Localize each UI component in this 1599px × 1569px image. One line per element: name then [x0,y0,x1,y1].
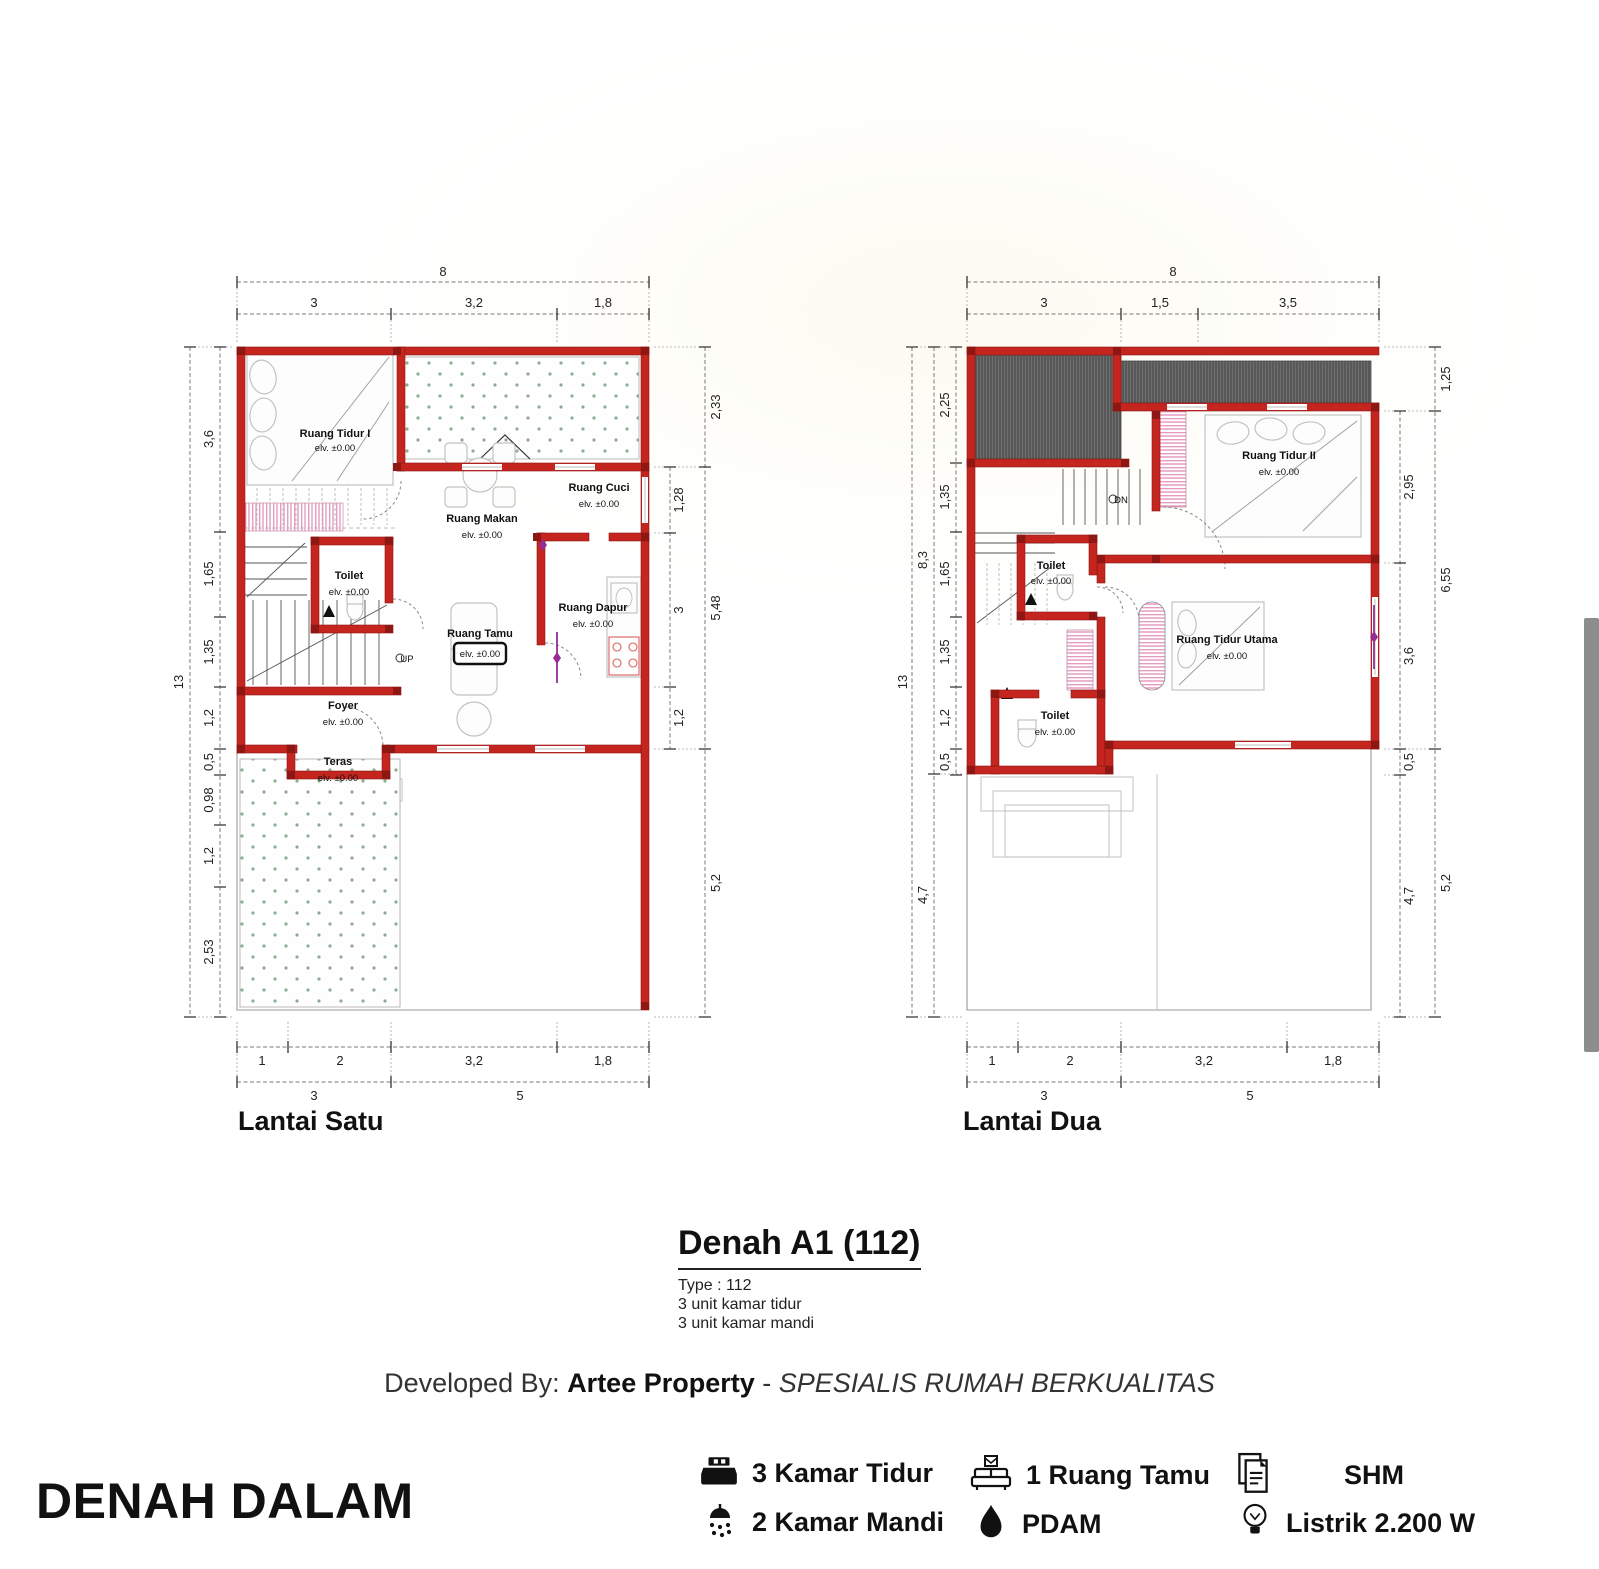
dim-label: 3,2 [465,295,483,310]
developer-prefix: Developed By: [384,1368,567,1398]
dim-label: 2,53 [201,939,216,964]
floor1-title: Lantai Satu [238,1106,384,1137]
room-elev: elv. ±0.00 [460,649,500,660]
feature-label: PDAM [1022,1509,1102,1540]
floorplan-lantai-satu: 8 3 3,2 1,8 13 3,6 1,65 1,35 1,2 0,5 0,9… [170,252,760,1102]
developer-separator: - [755,1368,779,1398]
room-elev: elv. ±0.00 [1035,727,1075,738]
room-elev: elv. ±0.00 [329,587,369,598]
developer-brand: Artee Property [567,1368,755,1398]
plan-bathrooms-line: 3 unit kamar mandi [678,1314,921,1333]
stair-up-label: UP [400,654,413,665]
room-elev: elv. ±0.00 [1207,651,1247,662]
lower-floor-outline [967,749,1371,1010]
dim-label: 6,55 [1438,567,1453,592]
feature-label: Listrik 2.200 W [1286,1508,1475,1539]
room-elev: elv. ±0.00 [579,499,619,510]
room-label-ruang-makan: Ruang Makan [446,513,518,525]
armchair [457,702,491,736]
room-elev: elv. ±0.00 [462,530,502,541]
room-label-teras: Teras [324,756,353,768]
room-label-ruang-dapur: Ruang Dapur [558,602,628,614]
dim-label: 3 [671,606,686,613]
dim-label: 5,48 [708,595,723,620]
room-label-foyer: Foyer [328,700,359,712]
dim-label: 1,2 [201,709,216,727]
dim-label: 3,6 [1401,647,1416,665]
dim-label: 8 [1169,264,1176,279]
dim-label: 3,5 [1279,295,1297,310]
dim-label: 2 [1066,1053,1073,1068]
closet-hatch [241,503,343,531]
room-label-toilet-bawah: Toilet [1041,710,1070,722]
dim-label: 13 [895,675,910,689]
dim-label: 2,95 [1401,474,1416,499]
room-elev: elv. ±0.00 [1031,576,1071,587]
developer-line: Developed By: Artee Property - SPESIALIS… [0,1368,1599,1399]
dim-label: 3 [1040,295,1047,310]
dim-label: 13 [171,675,186,689]
feature-ruang-tamu: 1 Ruang Tamu [968,1455,1210,1495]
dim-label: 3,6 [201,430,216,448]
dim-label: 1,8 [594,1053,612,1068]
scrollbar-thumb[interactable] [1584,618,1599,1052]
room-label-ruang-tidur-2: Ruang Tidur II [1242,450,1316,462]
feature-kamar-mandi: 2 Kamar Mandi [700,1502,944,1542]
feature-kamar-tidur: 3 Kamar Tidur [698,1455,933,1491]
dim-label: 1 [258,1053,265,1068]
floor-drain [323,605,335,617]
feature-shm: SHM [1232,1452,1404,1498]
room-label-ruang-tidur-utama: Ruang Tidur Utama [1176,634,1278,646]
dim-label: 8 [439,264,446,279]
dim-label: 0,5 [201,753,216,771]
room-label-toilet: Toilet [335,570,364,582]
dim-label: 1,2 [201,847,216,865]
dim-label: 8,3 [915,551,930,569]
shower-icon [700,1502,740,1542]
room-elev: elv. ±0.00 [573,619,613,630]
dim-label: 1,35 [201,639,216,664]
dim-label: 3,2 [465,1053,483,1068]
dim-label: 5,2 [708,874,723,892]
room-elev: elv. ±0.00 [318,773,358,784]
bed-icon [698,1455,740,1491]
room-elev: elv. ±0.00 [315,443,355,454]
dim-label: 3 [1040,1088,1047,1103]
dim-label: 1,35 [937,639,952,664]
dim-label: 2,33 [708,394,723,419]
dim-label: 3 [310,1088,317,1103]
dim-label: 3,2 [1195,1053,1213,1068]
water-drop-icon [972,1502,1010,1546]
dim-label: 1,65 [201,561,216,586]
dim-label: 1,28 [671,487,686,512]
floor2-title: Lantai Dua [963,1106,1101,1137]
title-block: Denah A1 (112) Type : 112 3 unit kamar t… [678,1224,921,1333]
dim-label: 5 [516,1088,523,1103]
feature-listrik: Listrik 2.200 W [1236,1500,1475,1546]
floorplan-lantai-dua: 8 3 1,5 3,5 13 8,3 4,7 2,25 1,35 1,65 1,… [900,252,1490,1102]
feature-label: SHM [1344,1460,1404,1491]
stairs-floor2 [975,469,1140,625]
feature-label: 3 Kamar Tidur [752,1458,933,1489]
feature-label: 1 Ruang Tamu [1026,1460,1210,1491]
room-label-ruang-tidur: Ruang Tidur I [300,428,371,440]
dim-label: 5 [1246,1088,1253,1103]
dim-label: 1,8 [1324,1053,1342,1068]
section-label: DENAH DALAM [36,1472,414,1530]
feature-label: 2 Kamar Mandi [752,1507,944,1538]
dim-label: 1 [988,1053,995,1068]
dim-label: 1,2 [937,709,952,727]
dim-label: 0,5 [937,753,952,771]
room-label-ruang-cuci: Ruang Cuci [568,482,629,494]
room-label-toilet-atas: Toilet [1037,560,1066,572]
plan-bedrooms-line: 3 unit kamar tidur [678,1295,921,1314]
dim-label: 0,98 [201,787,216,812]
dim-label: 1,2 [671,709,686,727]
dim-label: 1,25 [1438,366,1453,391]
room-label-ruang-tamu: Ruang Tamu [447,628,513,640]
dim-label: 4,7 [1401,887,1416,905]
plan-title: Denah A1 (112) [678,1224,921,1270]
dim-label: 1,8 [594,295,612,310]
room-elev: elv. ±0.00 [323,717,363,728]
bulb-icon [1236,1500,1274,1546]
plan-type-line: Type : 112 [678,1276,921,1295]
stair-down-label: DN [1114,495,1128,506]
dim-label: 3 [310,295,317,310]
page: 8 3 3,2 1,8 13 3,6 1,65 1,35 1,2 0,5 0,9… [0,0,1599,1569]
dim-label: 0,5 [1401,753,1416,771]
dim-label: 5,2 [1438,874,1453,892]
room-elev: elv. ±0.00 [1259,467,1299,478]
dim-label: 2 [336,1053,343,1068]
dim-label: 4,7 [915,886,930,904]
stove [609,637,639,675]
sofa-icon [968,1455,1014,1495]
feature-pdam: PDAM [972,1502,1102,1546]
developer-tagline: SPESIALIS RUMAH BERKUALITAS [779,1368,1215,1398]
dim-label: 1,65 [937,561,952,586]
dim-label: 2,25 [937,392,952,417]
dim-label: 1,5 [1151,295,1169,310]
certificate-icon [1232,1452,1274,1498]
dim-label: 1,35 [937,484,952,509]
